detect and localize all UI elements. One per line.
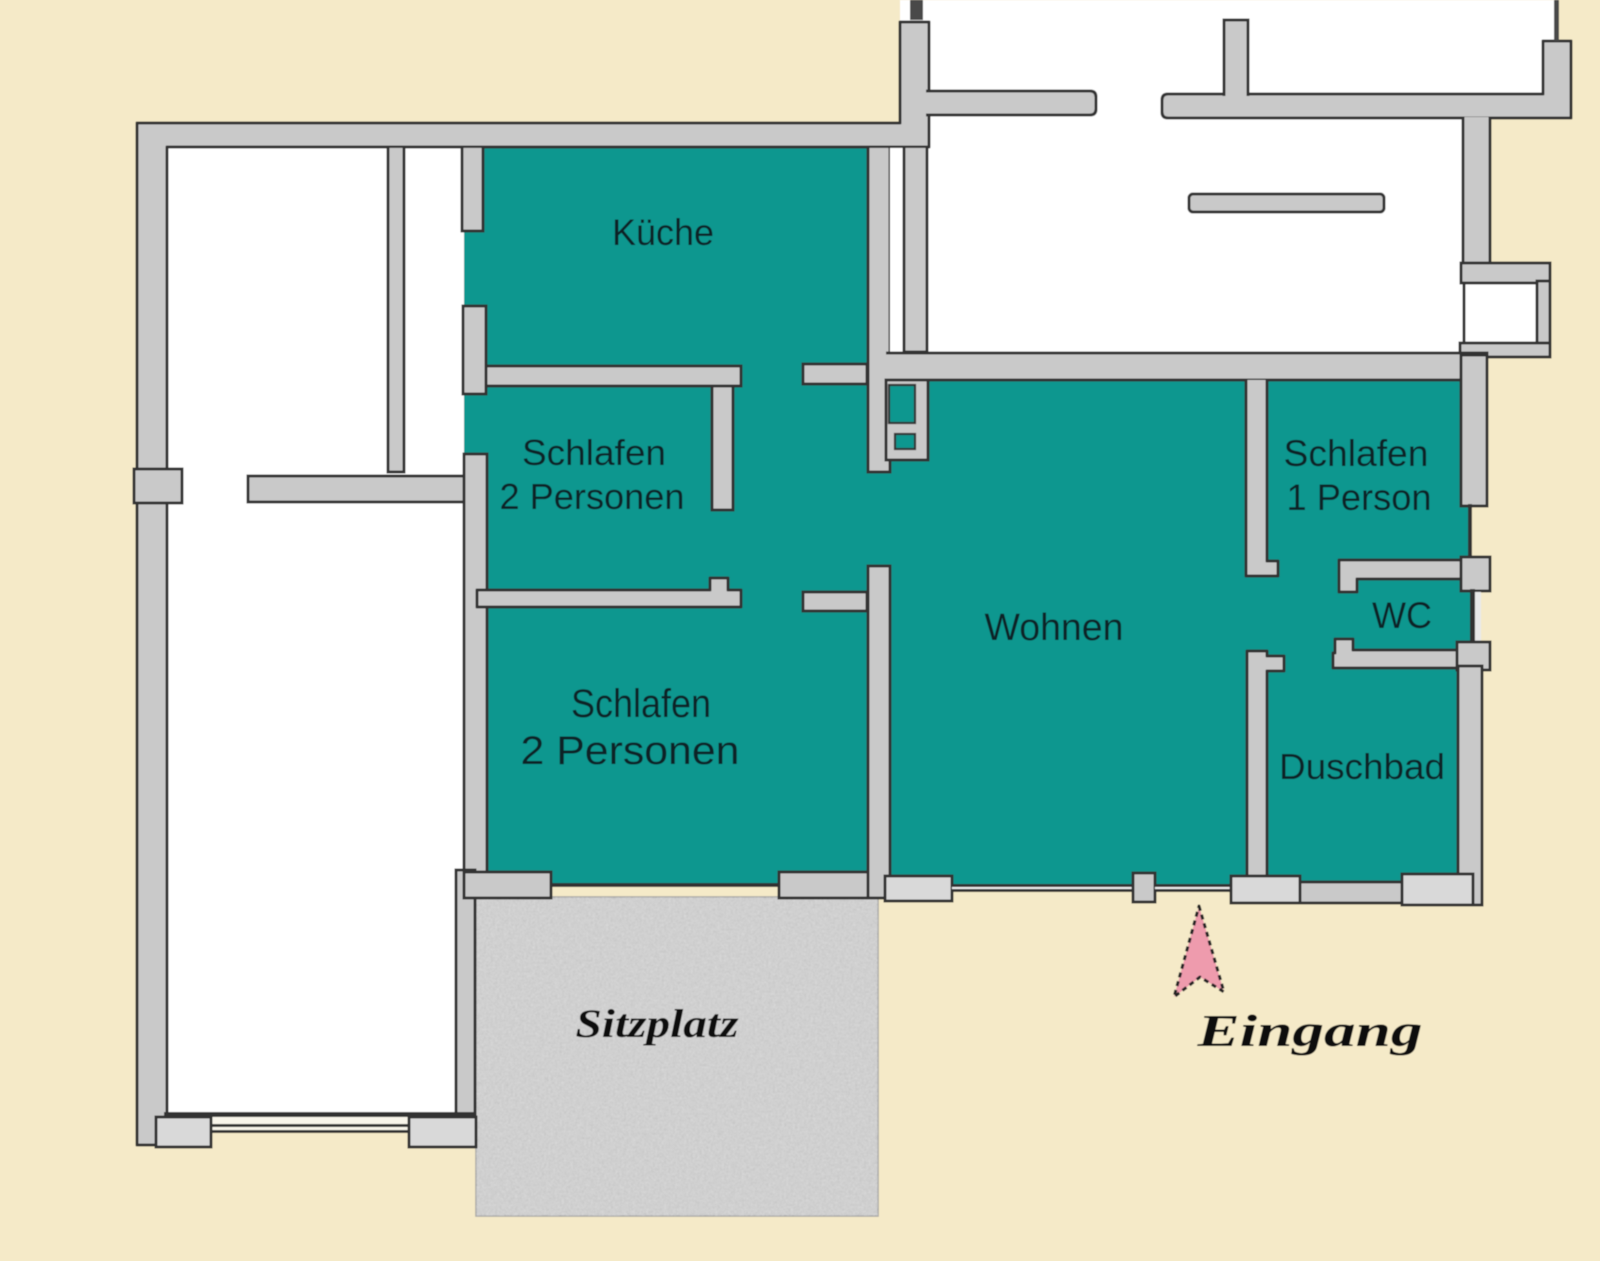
svg-text:WC: WC — [1372, 595, 1432, 636]
svg-text:Schlafen: Schlafen — [522, 432, 666, 473]
svg-text:2 Personen: 2 Personen — [521, 729, 740, 773]
svg-text:Wohnen: Wohnen — [985, 607, 1124, 649]
svg-text:Küche: Küche — [612, 212, 714, 253]
svg-text:Schlafen: Schlafen — [571, 682, 711, 726]
svg-text:Duschbad: Duschbad — [1279, 746, 1445, 787]
svg-text:Schlafen: Schlafen — [1284, 433, 1429, 474]
svg-text:Eingang: Eingang — [1196, 1005, 1422, 1056]
svg-text:Sitzplatz: Sitzplatz — [576, 1001, 739, 1046]
svg-text:1 Person: 1 Person — [1287, 477, 1432, 518]
svg-text:2 Personen: 2 Personen — [500, 476, 685, 517]
